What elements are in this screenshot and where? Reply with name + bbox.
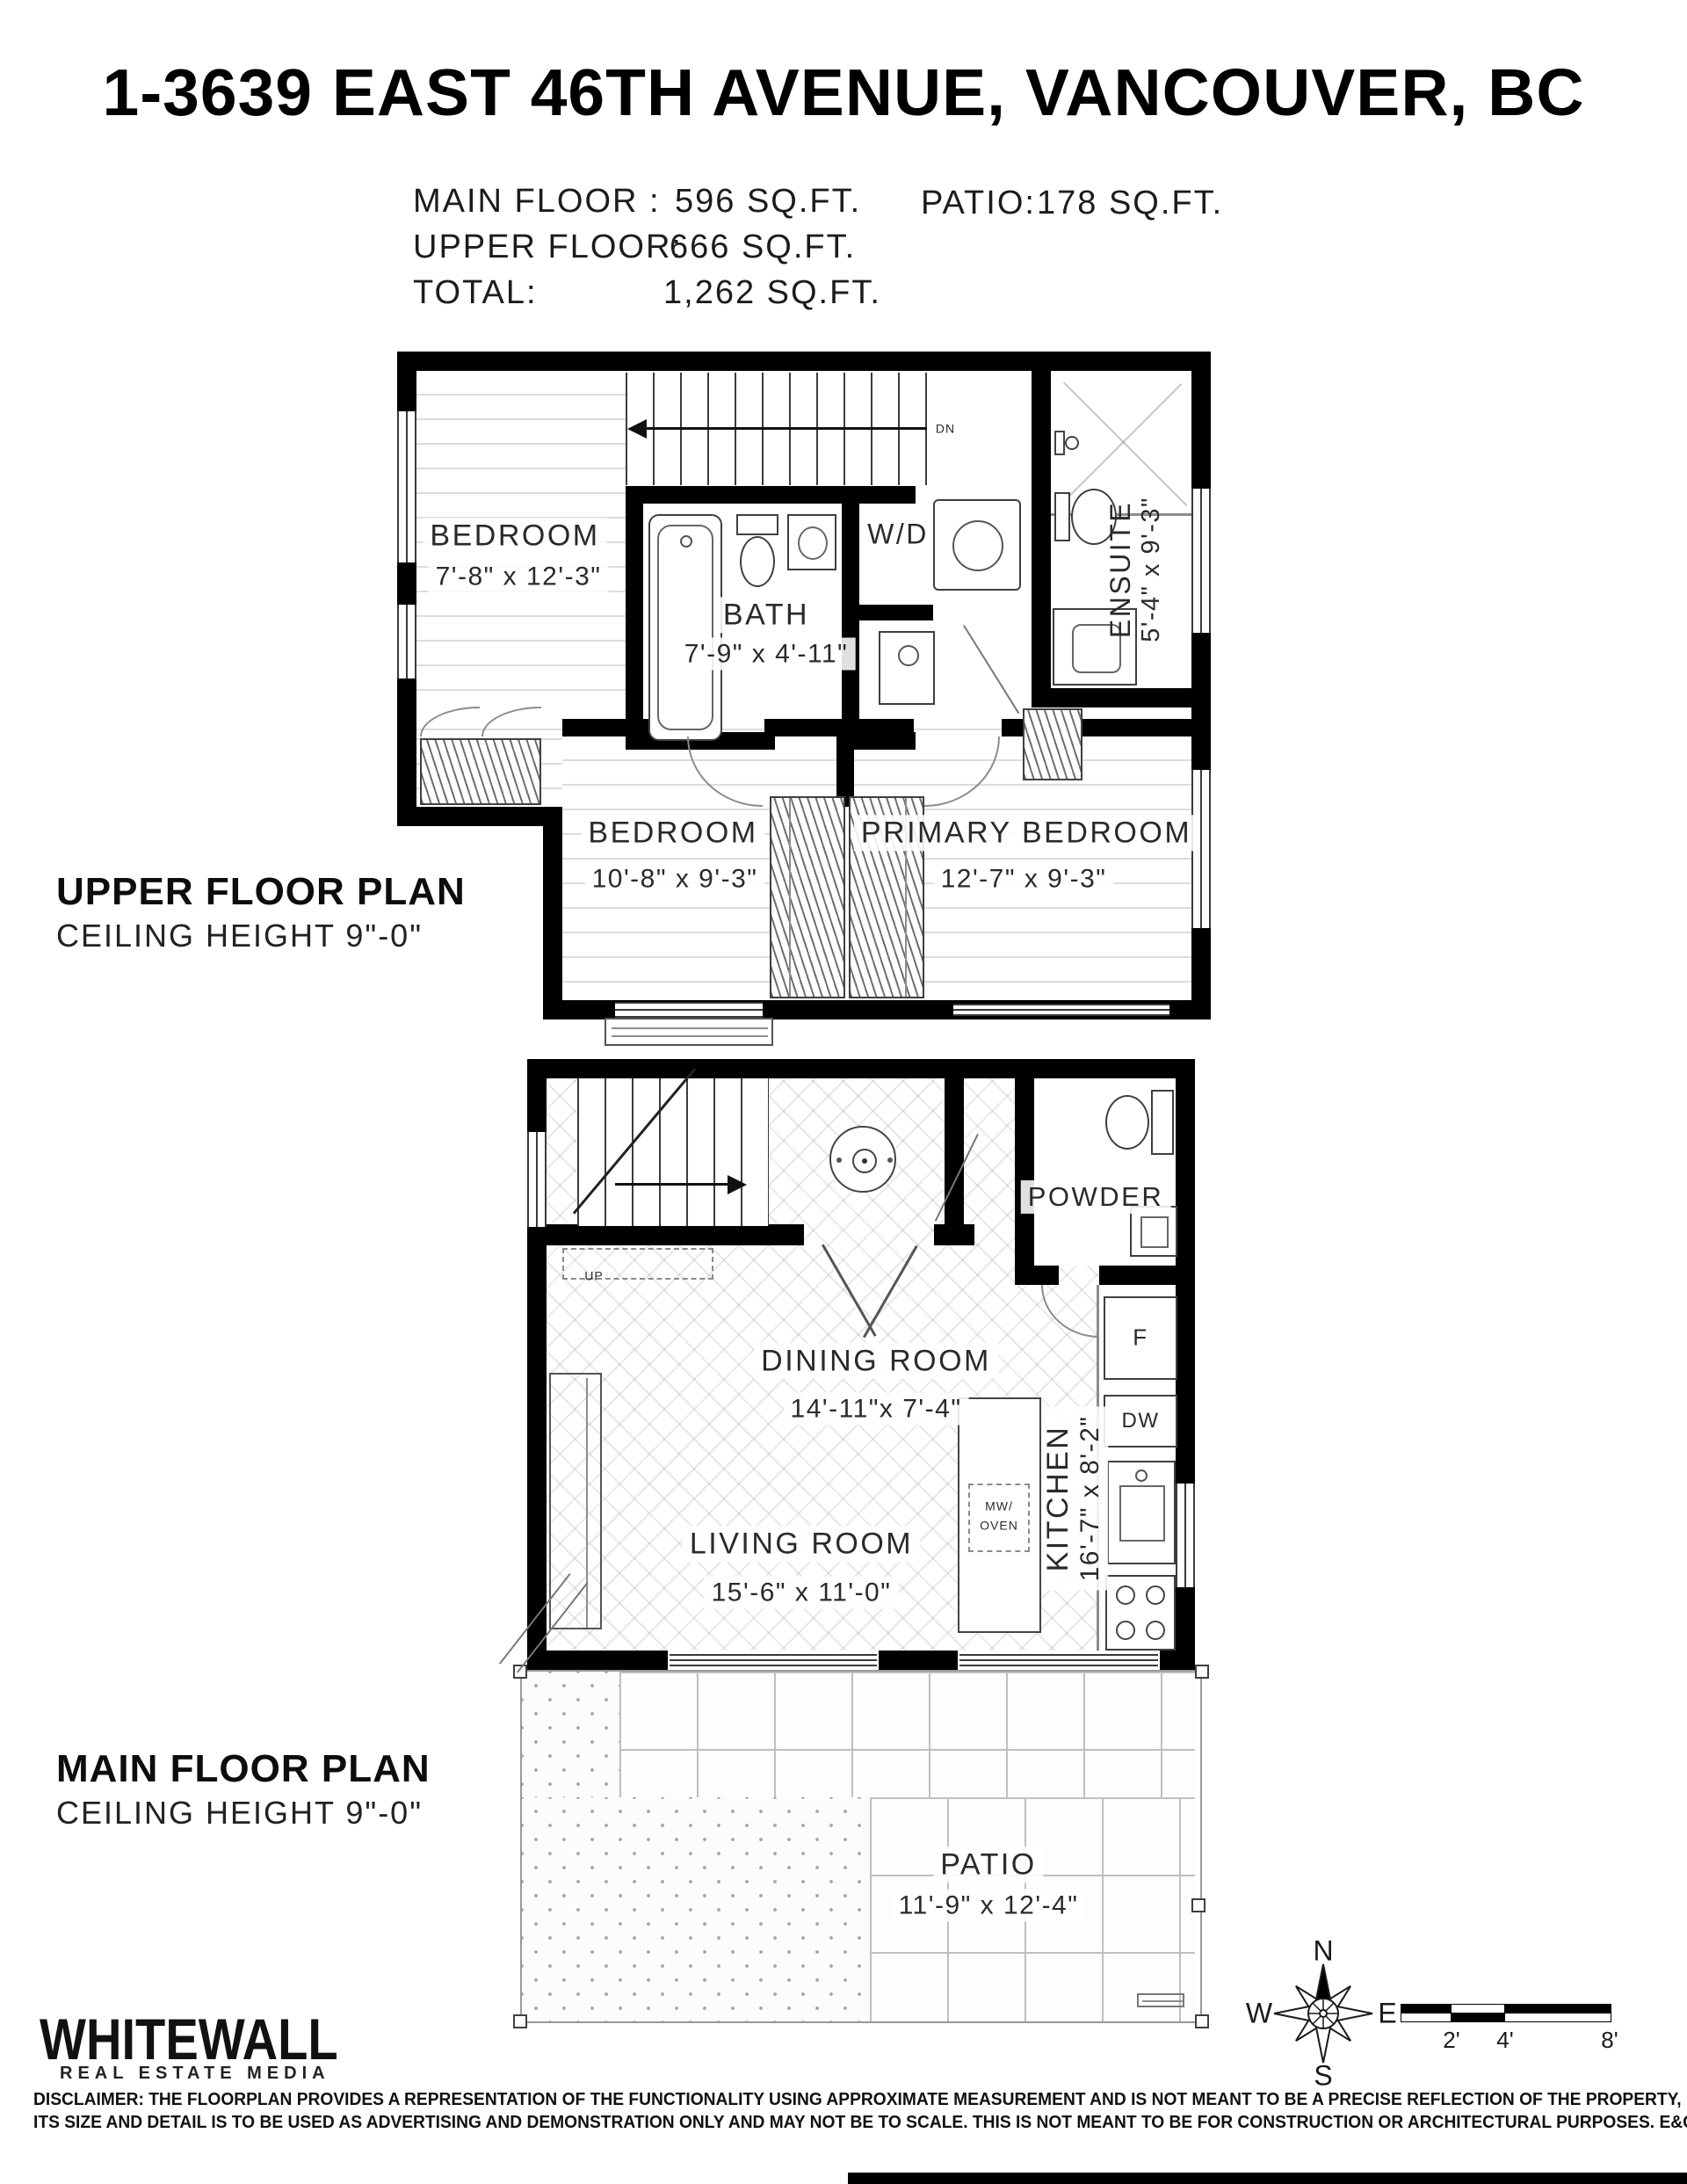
staircase-up xyxy=(577,1078,769,1226)
bay-window xyxy=(605,1018,773,1046)
sliding-door xyxy=(959,1654,1158,1666)
main-floor-area-label: MAIN FLOOR : xyxy=(413,183,661,221)
ensuite-label: ENSUITE xyxy=(1104,497,1137,642)
wall-segment xyxy=(1032,371,1051,707)
wall-segment xyxy=(543,807,562,1019)
living-room-dims: 15'-6" x 11'-0" xyxy=(705,1577,899,1609)
landscape-gravel xyxy=(522,1797,870,2021)
compass-rose: N S W E xyxy=(1257,1948,1389,2079)
ensuite-toilet-tank xyxy=(1054,492,1070,541)
disclaimer-line-2: ITS SIZE AND DETAIL IS TO BE USED AS ADV… xyxy=(33,2113,1687,2133)
total-area-label: TOTAL: xyxy=(413,274,538,312)
hall-closet xyxy=(420,738,541,805)
bath-label: BATH xyxy=(716,597,816,633)
bath-dims: 7'-9" x 4'-11" xyxy=(677,638,856,671)
patio-post xyxy=(513,2014,527,2028)
shower xyxy=(1053,373,1191,513)
scale-label-4ft: 4' xyxy=(1496,2027,1513,2054)
patio-drain xyxy=(1137,1993,1184,2007)
stair-arrow-icon xyxy=(627,419,647,439)
powder-toilet-tank xyxy=(1151,1090,1174,1155)
stove xyxy=(1105,1575,1176,1651)
wall-segment xyxy=(626,486,916,504)
wall-segment xyxy=(842,605,933,620)
stair-up-label: UP xyxy=(577,1267,610,1284)
upper-floor-area-value: 666 SQ.FT. xyxy=(670,229,856,266)
bedroom2-closet xyxy=(770,796,845,998)
wall-segment xyxy=(764,719,914,736)
mw-oven-label-1: MW/ xyxy=(978,1498,1020,1514)
window xyxy=(1191,489,1211,633)
wall-segment xyxy=(527,1059,1195,1078)
window xyxy=(1176,1484,1195,1587)
patio-area-label: PATIO: xyxy=(921,185,1036,222)
window xyxy=(953,1004,1169,1016)
upper-floor-area-label: UPPER FLOOR: xyxy=(413,229,683,266)
wall-segment xyxy=(527,1651,668,1670)
dining-room-dims: 14'-11"x 7'-4" xyxy=(784,1393,969,1426)
washer-dryer xyxy=(933,499,1021,591)
upper-plan-heading: UPPER FLOOR PLAN xyxy=(56,870,466,914)
kitchen-sink xyxy=(1107,1461,1176,1564)
toilet-bowl xyxy=(740,536,775,587)
main-plan-subheading: CEILING HEIGHT 9"-0" xyxy=(56,1795,423,1832)
wall-segment xyxy=(879,1651,958,1670)
light-fixture xyxy=(829,1126,896,1193)
floorplan-page: 1-3639 EAST 46TH AVENUE, VANCOUVER, BC M… xyxy=(0,0,1687,2184)
patio-area-value: 178 SQ.FT. xyxy=(1037,185,1223,222)
landscape-gravel xyxy=(522,1672,619,1797)
scale-label-2ft: 2' xyxy=(1443,2027,1459,2054)
utility-cabinet xyxy=(879,631,935,705)
whitewall-logo: WHITEWALL xyxy=(40,2006,338,2072)
wall-segment xyxy=(397,807,562,826)
window xyxy=(397,605,416,678)
wall-segment xyxy=(934,1224,974,1245)
compass-w-label: W xyxy=(1246,1998,1272,2030)
compass-n-label: N xyxy=(1313,1935,1333,1968)
stair-direction-line xyxy=(615,1183,729,1186)
window xyxy=(615,1002,763,1018)
window xyxy=(397,411,416,562)
kitchen-label: KITCHEN xyxy=(1041,1416,1075,1582)
patio-post xyxy=(1195,1665,1209,1679)
wall-segment xyxy=(626,486,643,750)
window xyxy=(527,1132,547,1227)
powder-label: POWDER xyxy=(1021,1180,1171,1214)
compass-e-label: E xyxy=(1378,1998,1396,2030)
scale-label-8ft: 8' xyxy=(1601,2027,1618,2054)
patio-dims: 11'-9" x 12'-4" xyxy=(892,1890,1086,1922)
primary-bedroom-dims: 12'-7" x 9'-3" xyxy=(934,863,1114,896)
main-plan-heading: MAIN FLOOR PLAN xyxy=(56,1747,431,1791)
ensuite-dims: 5'-4" x 9'-3" xyxy=(1137,497,1166,642)
compass-s-label: S xyxy=(1314,2060,1332,2093)
wall-segment xyxy=(1015,1266,1059,1285)
wall-segment xyxy=(945,1078,964,1224)
stair-dn-label: DN xyxy=(929,420,962,437)
ensuite-label-group: ENSUITE 5'-4" x 9'-3" xyxy=(1104,497,1166,642)
bedroom1-dims: 7'-8" x 12'-3" xyxy=(429,561,609,593)
wall-segment xyxy=(1032,688,1211,707)
total-area-value: 1,262 SQ.FT. xyxy=(663,274,881,312)
dishwasher-label: DW xyxy=(1115,1408,1167,1434)
stair-direction-line xyxy=(646,427,927,430)
mw-oven-label-2: OVEN xyxy=(973,1517,1025,1534)
main-floor-area-value: 596 SQ.FT. xyxy=(675,183,861,221)
patio-tiles xyxy=(619,1672,1195,1797)
toilet xyxy=(736,514,778,535)
whitewall-tagline: REAL ESTATE MEDIA xyxy=(60,2064,330,2084)
patio-post xyxy=(1195,2014,1209,2028)
fridge-label: F xyxy=(1126,1324,1155,1353)
primary-hall-closet xyxy=(1023,708,1082,780)
wall-segment xyxy=(1099,1266,1195,1285)
kitchen-label-group: KITCHEN 16'-7" x 8'-2" xyxy=(1039,1407,1108,1591)
powder-toilet-bowl xyxy=(1105,1095,1149,1150)
bottom-crop-bar xyxy=(848,2173,1687,2184)
door-leaf xyxy=(963,625,1019,714)
wall-segment xyxy=(397,352,1211,371)
page-title: 1-3639 EAST 46TH AVENUE, VANCOUVER, BC xyxy=(0,54,1687,130)
wall-segment xyxy=(547,1224,804,1245)
bedroom2-label: BEDROOM xyxy=(581,815,764,851)
wall-segment xyxy=(1160,1651,1195,1670)
bedroom2-dims: 10'-8" x 9'-3" xyxy=(585,863,765,896)
patio-label: PATIO xyxy=(933,1847,1043,1883)
bathtub xyxy=(648,514,722,741)
upper-plan-subheading: CEILING HEIGHT 9"-0" xyxy=(56,918,423,954)
bath-sink xyxy=(787,514,836,570)
living-room-label: LIVING ROOM xyxy=(683,1526,920,1562)
kitchen-dims: 16'-7" x 8'-2" xyxy=(1075,1416,1106,1582)
stair-arrow-icon xyxy=(728,1175,747,1194)
dining-room-label: DINING ROOM xyxy=(754,1343,998,1379)
disclaimer-line-1: DISCLAIMER: THE FLOORPLAN PROVIDES A REP… xyxy=(33,2090,1682,2110)
wd-label: W/D xyxy=(860,517,936,551)
patio-post xyxy=(1191,1898,1206,1912)
scale-bar: 2' 4' 8' xyxy=(1401,2004,1611,2057)
bedroom1-label: BEDROOM xyxy=(423,518,606,554)
sliding-door xyxy=(670,1654,877,1666)
primary-bedroom-label: PRIMARY BEDROOM xyxy=(854,815,1198,851)
